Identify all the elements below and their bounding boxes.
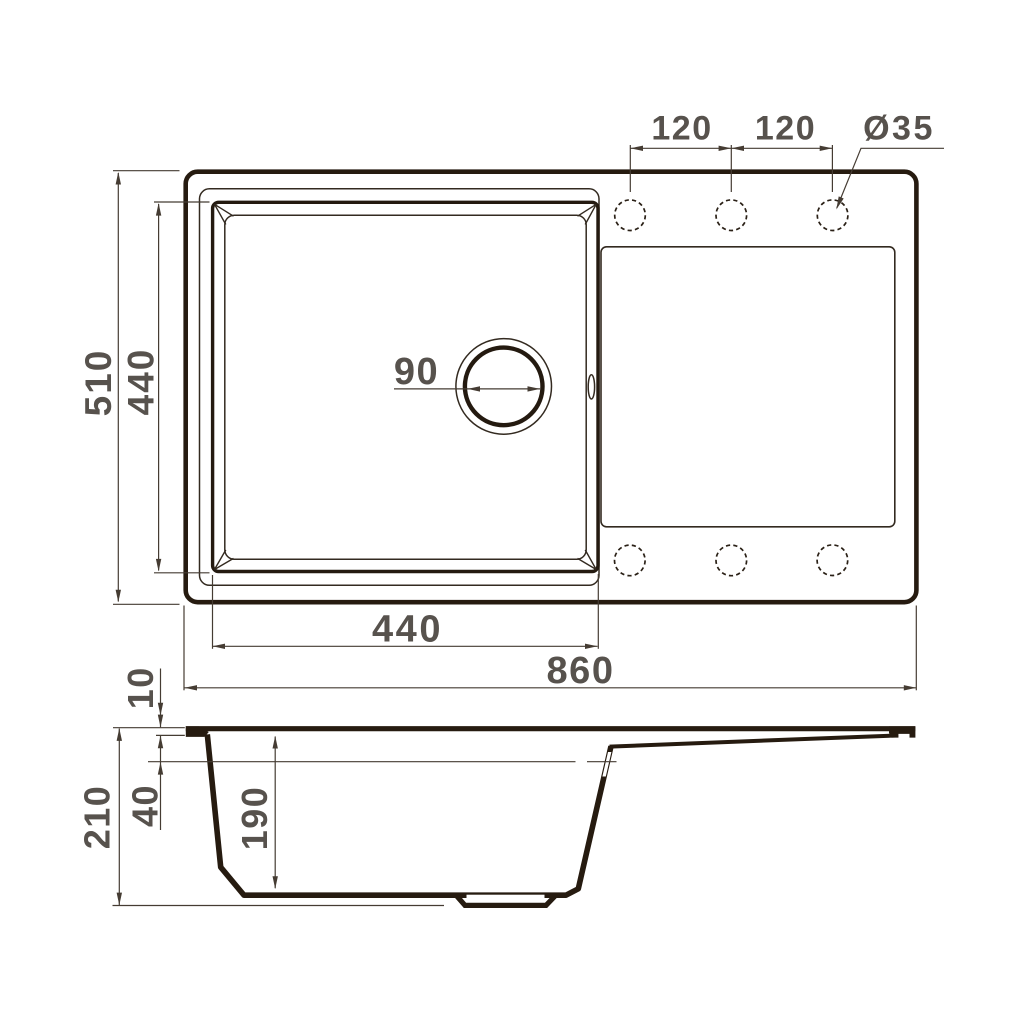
- svg-text:860: 860: [547, 650, 615, 692]
- svg-text:120: 120: [651, 110, 712, 148]
- svg-text:10: 10: [120, 666, 161, 709]
- svg-text:190: 190: [234, 786, 275, 851]
- svg-text:120: 120: [755, 110, 816, 148]
- svg-text:90: 90: [394, 351, 439, 393]
- svg-text:40: 40: [125, 784, 166, 827]
- svg-text:210: 210: [77, 785, 118, 850]
- svg-text:440: 440: [372, 609, 443, 651]
- svg-text:Ø35: Ø35: [863, 110, 935, 148]
- svg-text:510: 510: [78, 349, 119, 417]
- svg-text:440: 440: [121, 348, 162, 416]
